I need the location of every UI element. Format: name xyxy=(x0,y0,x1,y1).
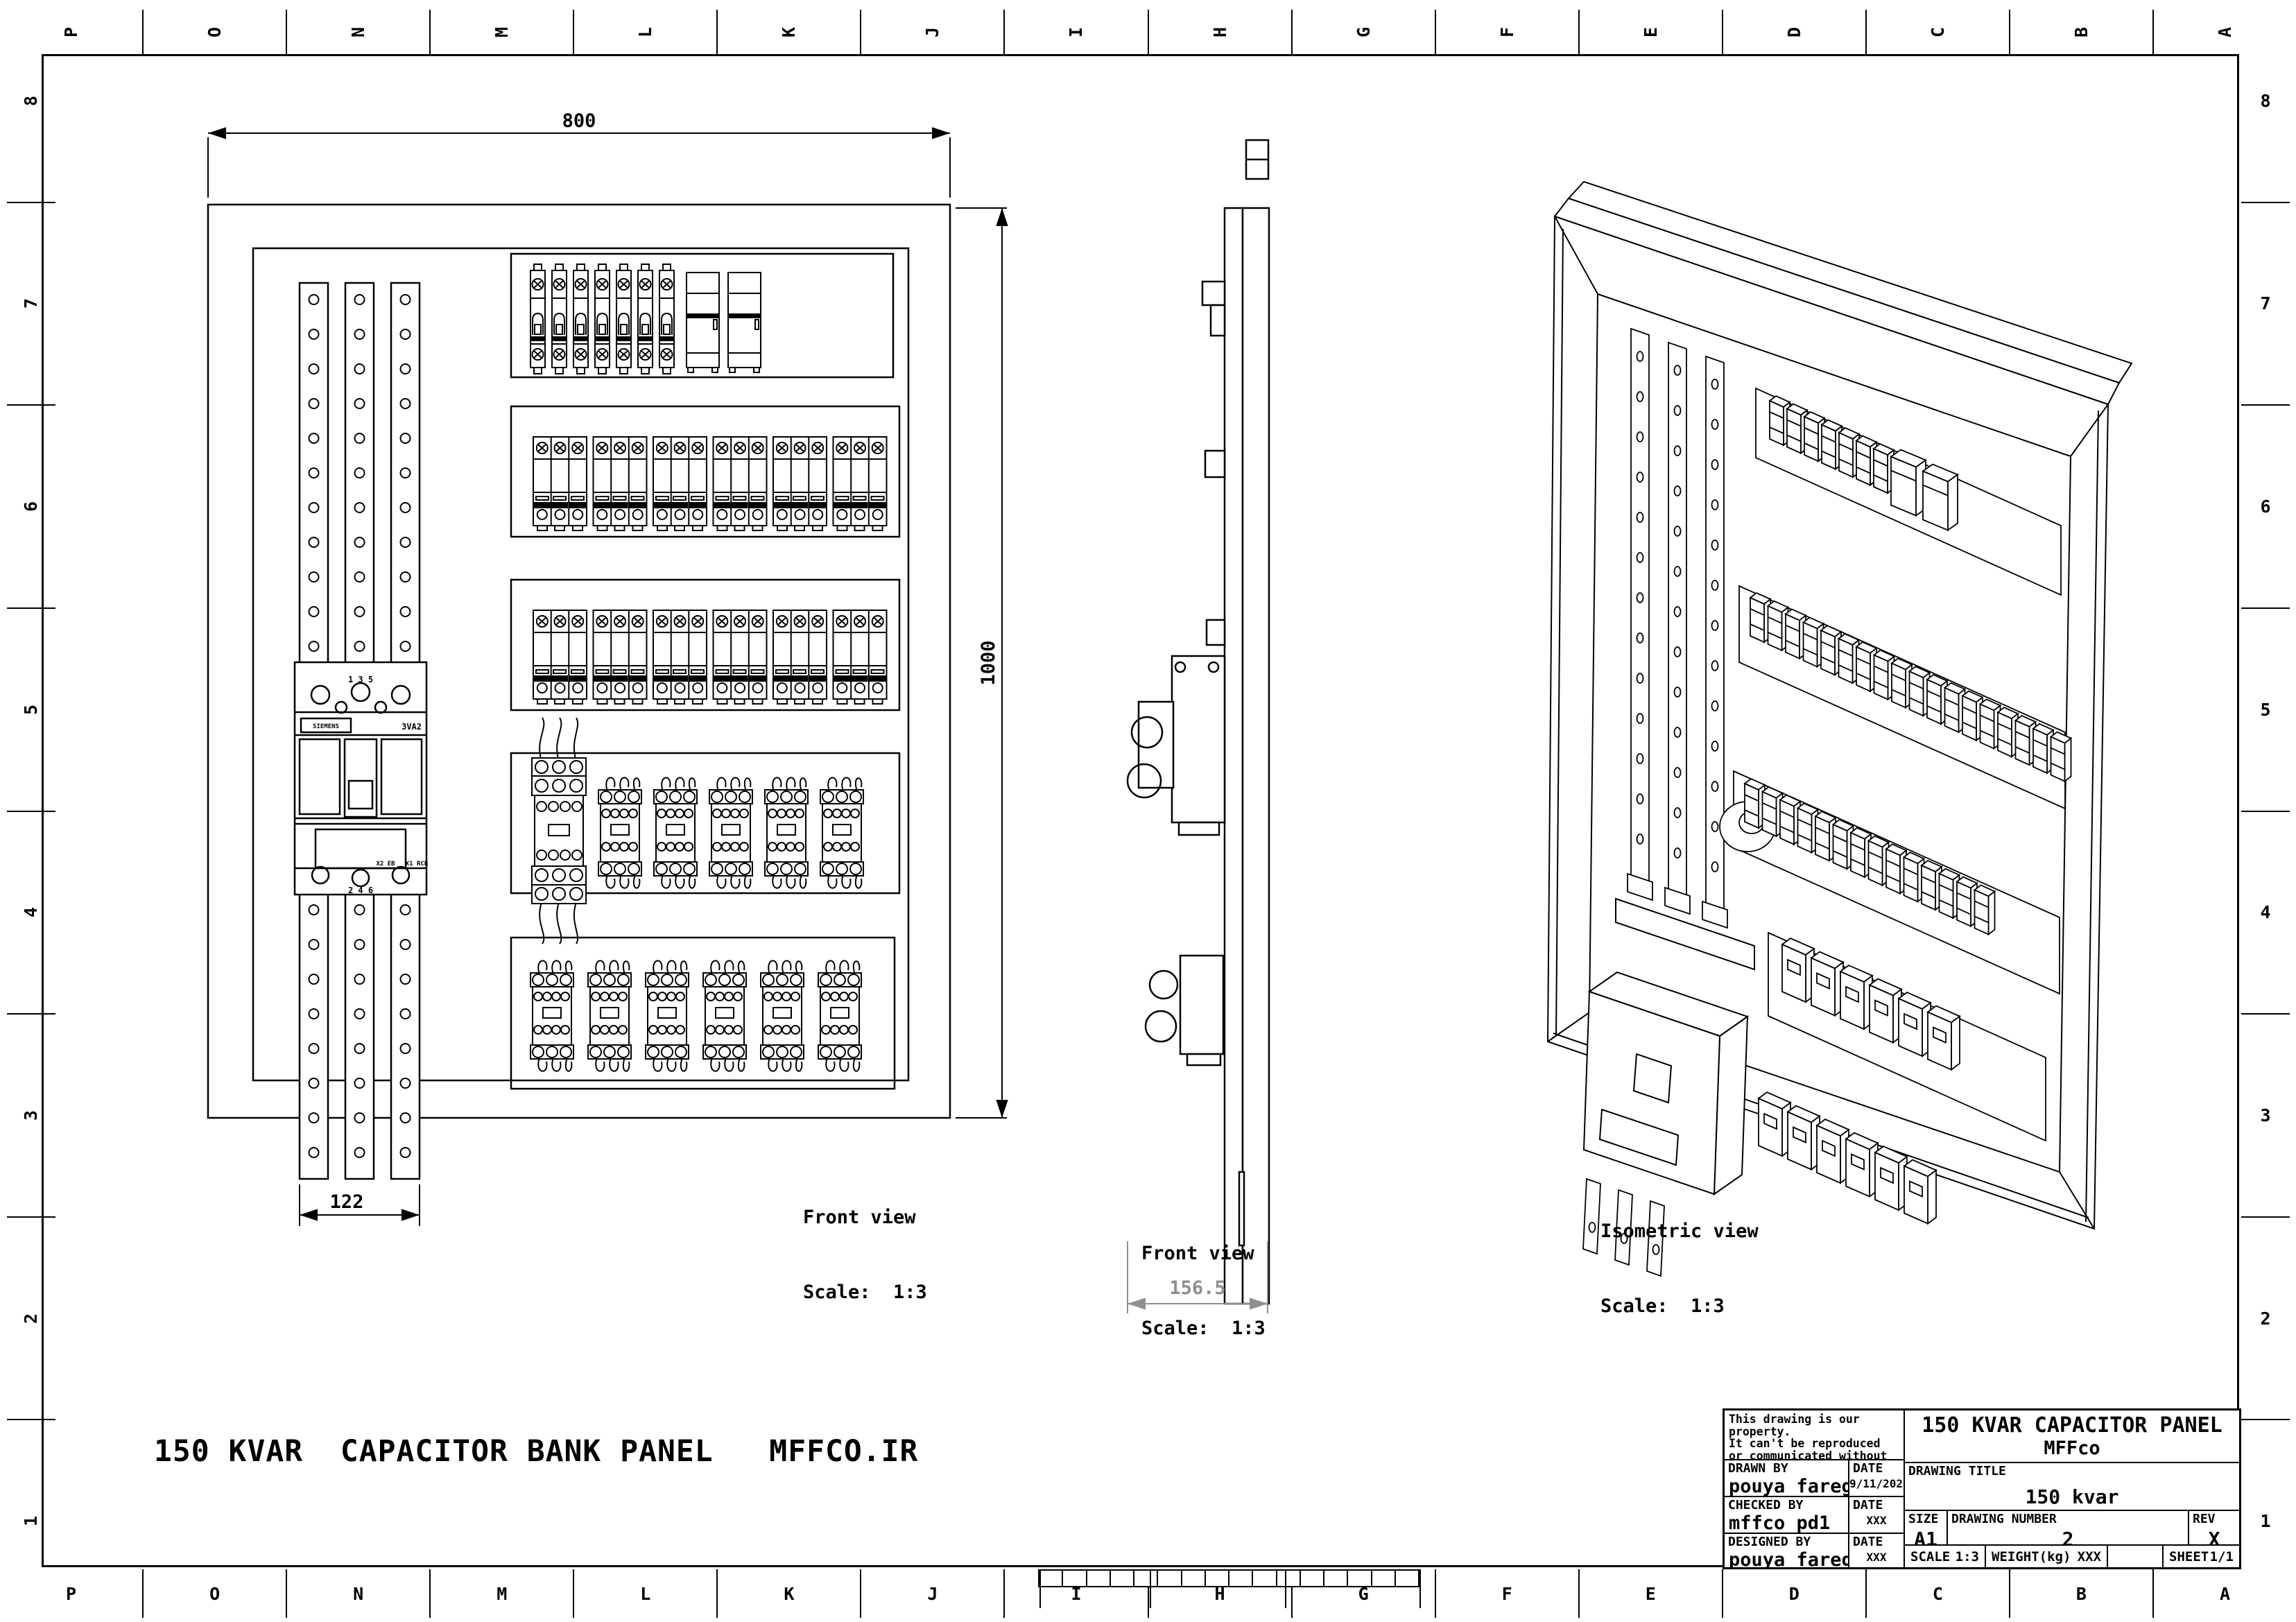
iso-component xyxy=(1899,992,1931,1056)
side-contactor-cluster-1 xyxy=(1128,656,1225,835)
iso-component xyxy=(1875,1146,1907,1210)
side-view-title: Front view xyxy=(1141,1241,1266,1266)
front-view-label: Front view Scale: 1:3 xyxy=(803,1155,927,1355)
contactor xyxy=(703,960,746,1071)
iso-component xyxy=(1870,979,1901,1043)
breaker-3pole xyxy=(533,610,587,704)
breaker-3pole xyxy=(594,437,647,530)
iso-component xyxy=(1817,1119,1849,1183)
contactor xyxy=(530,960,573,1071)
main-breaker-mccb xyxy=(295,662,426,895)
contactor xyxy=(709,777,752,888)
isometric-view-label: Isometric view Scale: 1:3 xyxy=(1600,1169,1759,1369)
side-view-label: Front view Scale: 1:3 xyxy=(1141,1191,1266,1391)
breaker-3pole xyxy=(653,437,707,530)
checked-date-cell: DATE XXX xyxy=(1849,1497,1905,1534)
sheet-cell: SHEET 1/1 xyxy=(2164,1546,2239,1567)
mccb-aux-label-2: X1 RCB xyxy=(406,861,429,868)
iso-component xyxy=(1811,952,1843,1016)
breaker-3pole xyxy=(834,437,887,530)
iso-component xyxy=(1904,1160,1936,1224)
iso-component xyxy=(1975,885,1995,934)
isometric-view xyxy=(1548,182,2132,1276)
breaker-3pole xyxy=(834,610,887,704)
isometric-view-title: Isometric view xyxy=(1600,1219,1759,1244)
aux-device xyxy=(687,273,719,372)
front-view-title: Front view xyxy=(803,1205,927,1230)
drawing-number-cell: DRAWING NUMBER 2 xyxy=(1948,1511,2189,1546)
iso-component xyxy=(1846,1133,1878,1197)
side-view-scale: Scale: 1:3 xyxy=(1141,1316,1266,1341)
page-title: 150 KVAR CAPACITOR BANK PANEL MFFCO.IR xyxy=(154,1434,918,1469)
mccb-top-terminals: 1 3 5 xyxy=(348,675,373,684)
front-panel-components xyxy=(530,264,887,1071)
breaker-3pole xyxy=(773,437,827,530)
contactor xyxy=(598,777,641,888)
breaker-1pole xyxy=(638,264,653,374)
company-title-cell: 150 KVAR CAPACITOR PANEL MFFco xyxy=(1905,1410,2239,1463)
dim-height: 1000 xyxy=(978,640,999,685)
iso-component xyxy=(1928,1006,1960,1070)
breaker-3pole xyxy=(533,437,587,530)
designed-by-cell: DESIGNED BY pouya faregh xyxy=(1725,1534,1849,1567)
front-view-scale: Scale: 1:3 xyxy=(803,1280,927,1305)
iso-component xyxy=(1923,465,1958,530)
contactor xyxy=(588,960,631,1071)
blank-cell xyxy=(2108,1546,2164,1567)
size-cell: SIZE A1 xyxy=(1905,1511,1948,1546)
iso-component xyxy=(1788,1106,1820,1170)
contactor xyxy=(654,777,697,888)
iso-component xyxy=(1782,938,1814,1002)
breaker-3pole xyxy=(773,610,827,704)
side-contactor-cluster-2 xyxy=(1146,956,1223,1065)
mccb-model: 3VA2 xyxy=(402,722,422,732)
iso-component xyxy=(1891,450,1926,516)
front-view: 800 1000 122 1 3 5 2 4 6 SIEMENS 3VA2 X2… xyxy=(208,110,1007,1226)
drawn-by-cell: DRAWN BY pouya faregh xyxy=(1725,1460,1849,1497)
breaker-1pole xyxy=(573,264,588,374)
contactor xyxy=(818,960,861,1071)
iso-component xyxy=(1840,965,1872,1029)
side-view: 156.5 xyxy=(1128,140,1269,1313)
checked-by-cell: CHECKED BY mffco pd1 xyxy=(1725,1497,1849,1534)
weight-cell: WEIGHT(kg) XXX xyxy=(1986,1546,2108,1567)
drawing-title-cell: DRAWING TITLE 150 kvar xyxy=(1905,1463,2239,1511)
breaker-1pole xyxy=(595,264,610,374)
breaker-3pole xyxy=(653,610,707,704)
dim-width: 800 xyxy=(562,110,596,132)
contactor xyxy=(820,777,863,888)
scale-ruler xyxy=(1038,1569,1421,1587)
mccb-bottom-terminals: 2 4 6 xyxy=(348,886,373,895)
breaker-3pole xyxy=(714,610,767,704)
isometric-view-scale: Scale: 1:3 xyxy=(1600,1294,1759,1319)
breaker-3pole xyxy=(594,610,647,704)
scale-cell: SCALE 1:3 xyxy=(1905,1546,1986,1567)
breaker-1pole xyxy=(530,264,545,374)
drawn-date-cell: DATE 9/11/2025 xyxy=(1849,1460,1905,1497)
contactor xyxy=(646,960,689,1071)
property-notice: This drawing is our property. It can't b… xyxy=(1725,1410,1905,1460)
breaker-1pole xyxy=(659,264,674,374)
iso-component xyxy=(2051,732,2071,782)
breaker-3pole xyxy=(714,437,767,530)
mccb-aux-label-1: X2 EB xyxy=(376,861,395,868)
drawing-sheet: PONMLKJIHGFEDCBA PONMLKJIHGFEDCBA 876543… xyxy=(0,0,2296,1622)
rev-cell: REV X xyxy=(2189,1511,2239,1546)
contactor xyxy=(765,777,808,888)
aux-device xyxy=(728,273,761,372)
title-block: This drawing is our property. It can't b… xyxy=(1723,1408,2241,1569)
iso-component xyxy=(1759,1092,1790,1156)
breaker-1pole xyxy=(552,264,567,374)
capacitor-contactor xyxy=(532,718,586,944)
dim-busbar-width: 122 xyxy=(330,1191,364,1213)
designed-date-cell: DATE XXX xyxy=(1849,1534,1905,1567)
mccb-brand: SIEMENS xyxy=(313,723,339,730)
contactor xyxy=(761,960,804,1071)
iso-busbars xyxy=(1628,329,1727,928)
breaker-1pole xyxy=(616,264,631,374)
